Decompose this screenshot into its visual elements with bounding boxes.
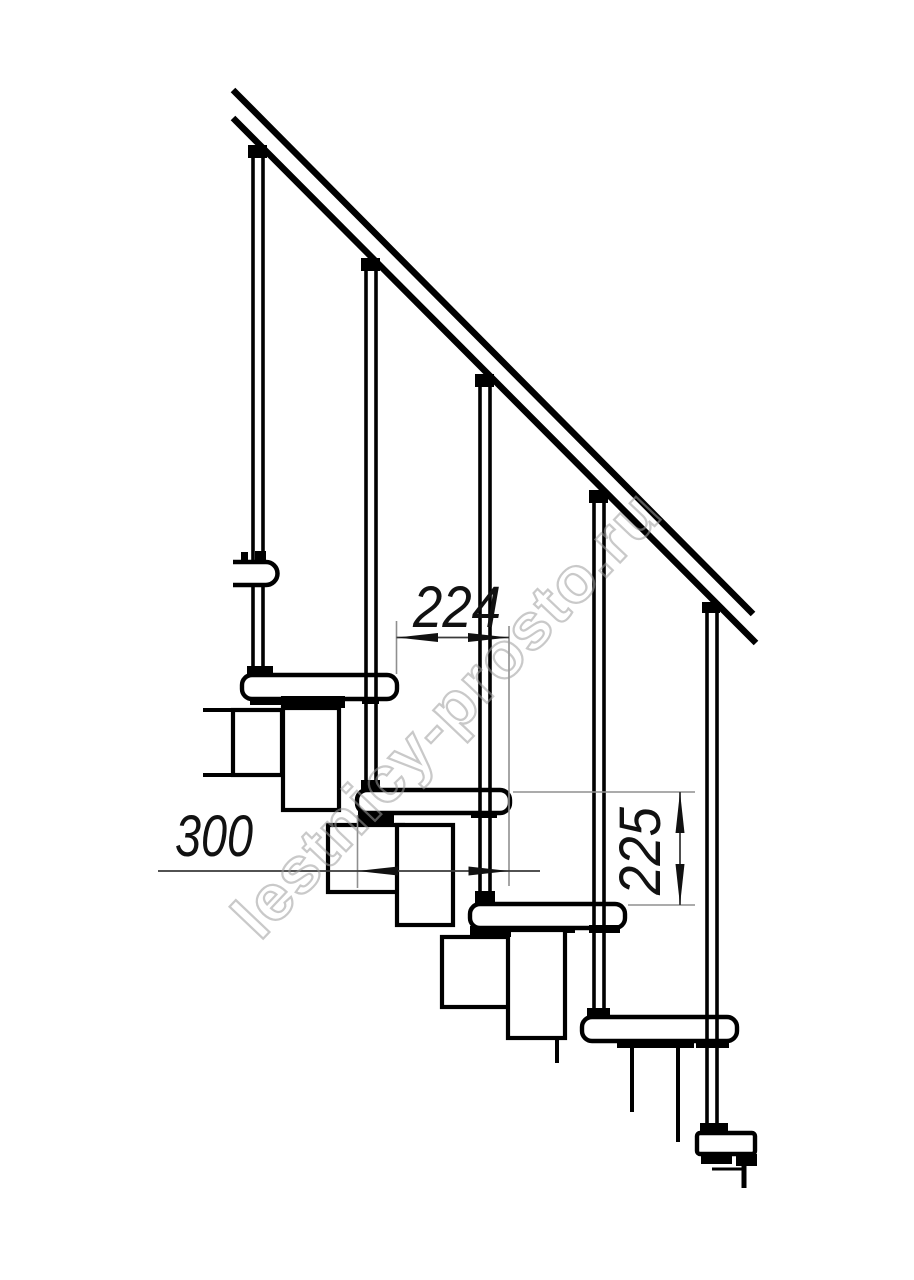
module-1-top-plate (281, 696, 345, 708)
bracket-tab-left (241, 552, 248, 563)
baluster-1-bottom-cap (247, 666, 273, 676)
tread-4 (582, 1017, 737, 1041)
tread-3 (470, 904, 625, 928)
bracket-tab-right (255, 551, 266, 563)
module-4-top-plate (617, 1041, 694, 1048)
tread-3-under-tab-b (589, 925, 620, 933)
tread-1-under-tab-b (362, 697, 379, 704)
tread-2-under-tab (471, 811, 497, 818)
floor-mount-plate-b (736, 1154, 757, 1166)
landing-nose-bracket (233, 562, 278, 585)
baluster-3-bottom-cap (475, 891, 495, 904)
tread-1-under-tab-a (250, 697, 281, 705)
module-box-1-left (233, 710, 282, 775)
tread-5 (697, 1133, 755, 1154)
dim-300-value: 300 (175, 804, 253, 869)
tread-3-under-tab-a (566, 926, 575, 933)
module-box-2-right (397, 825, 453, 925)
module-box-3-right (508, 930, 565, 1038)
drawing-background (0, 0, 914, 1280)
staircase-drawing: 224 300 225 lestnicy-prosto.ru (0, 0, 914, 1280)
module-3-top-plate (470, 926, 511, 937)
tread-4-under-tab (696, 1040, 729, 1048)
dim-225-value: 225 (608, 806, 673, 896)
drawing-svg: 224 300 225 lestnicy-prosto.ru (0, 0, 914, 1280)
floor-mount-plate-a (701, 1154, 732, 1164)
baluster-4-bottom-cap (587, 1008, 610, 1018)
baluster-5-bottom-cap (700, 1123, 728, 1133)
tread-1 (242, 675, 397, 699)
